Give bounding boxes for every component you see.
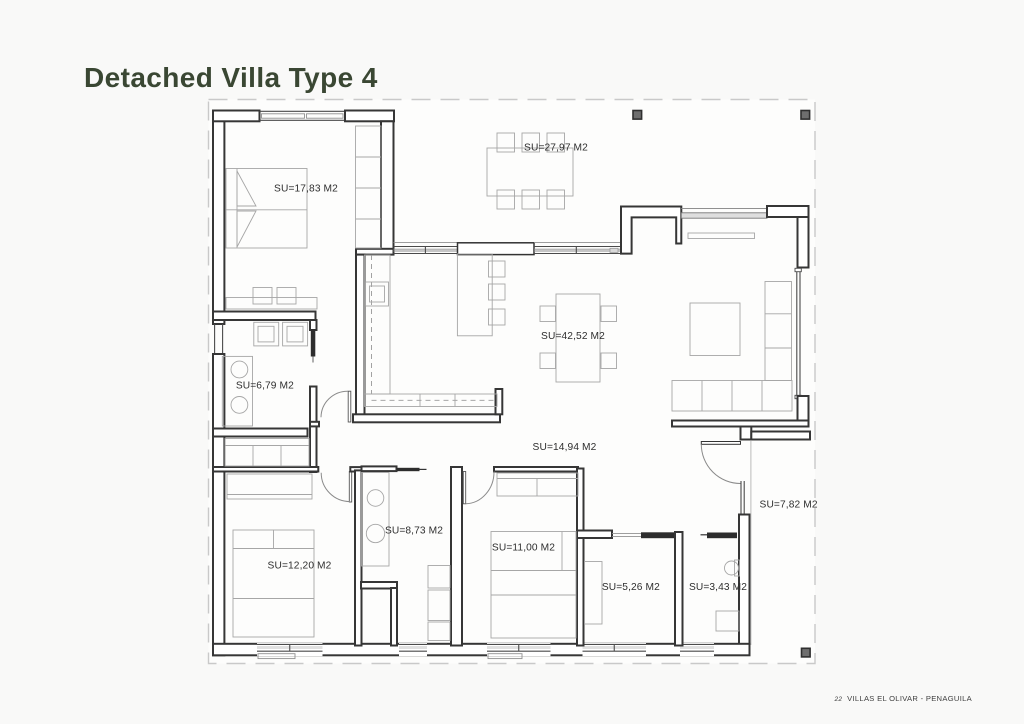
- svg-text:SU=6,79 M2: SU=6,79 M2: [236, 381, 294, 392]
- svg-text:SU=14,94 M2: SU=14,94 M2: [533, 442, 597, 453]
- svg-text:SU=27,97 M2: SU=27,97 M2: [524, 143, 588, 154]
- svg-text:SU=11,00 M2: SU=11,00 M2: [492, 543, 555, 554]
- svg-text:SU=12,20 M2: SU=12,20 M2: [268, 561, 332, 572]
- svg-text:SU=5,26 M2: SU=5,26 M2: [602, 582, 660, 593]
- svg-text:SU=7,82 M2: SU=7,82 M2: [760, 500, 818, 511]
- svg-text:SU=17,83 M2: SU=17,83 M2: [274, 184, 338, 195]
- svg-text:SU=8,73 M2: SU=8,73 M2: [385, 526, 443, 537]
- svg-text:SU=3,43 M2: SU=3,43 M2: [689, 582, 747, 593]
- svg-text:SU=42,52 M2: SU=42,52 M2: [541, 331, 605, 342]
